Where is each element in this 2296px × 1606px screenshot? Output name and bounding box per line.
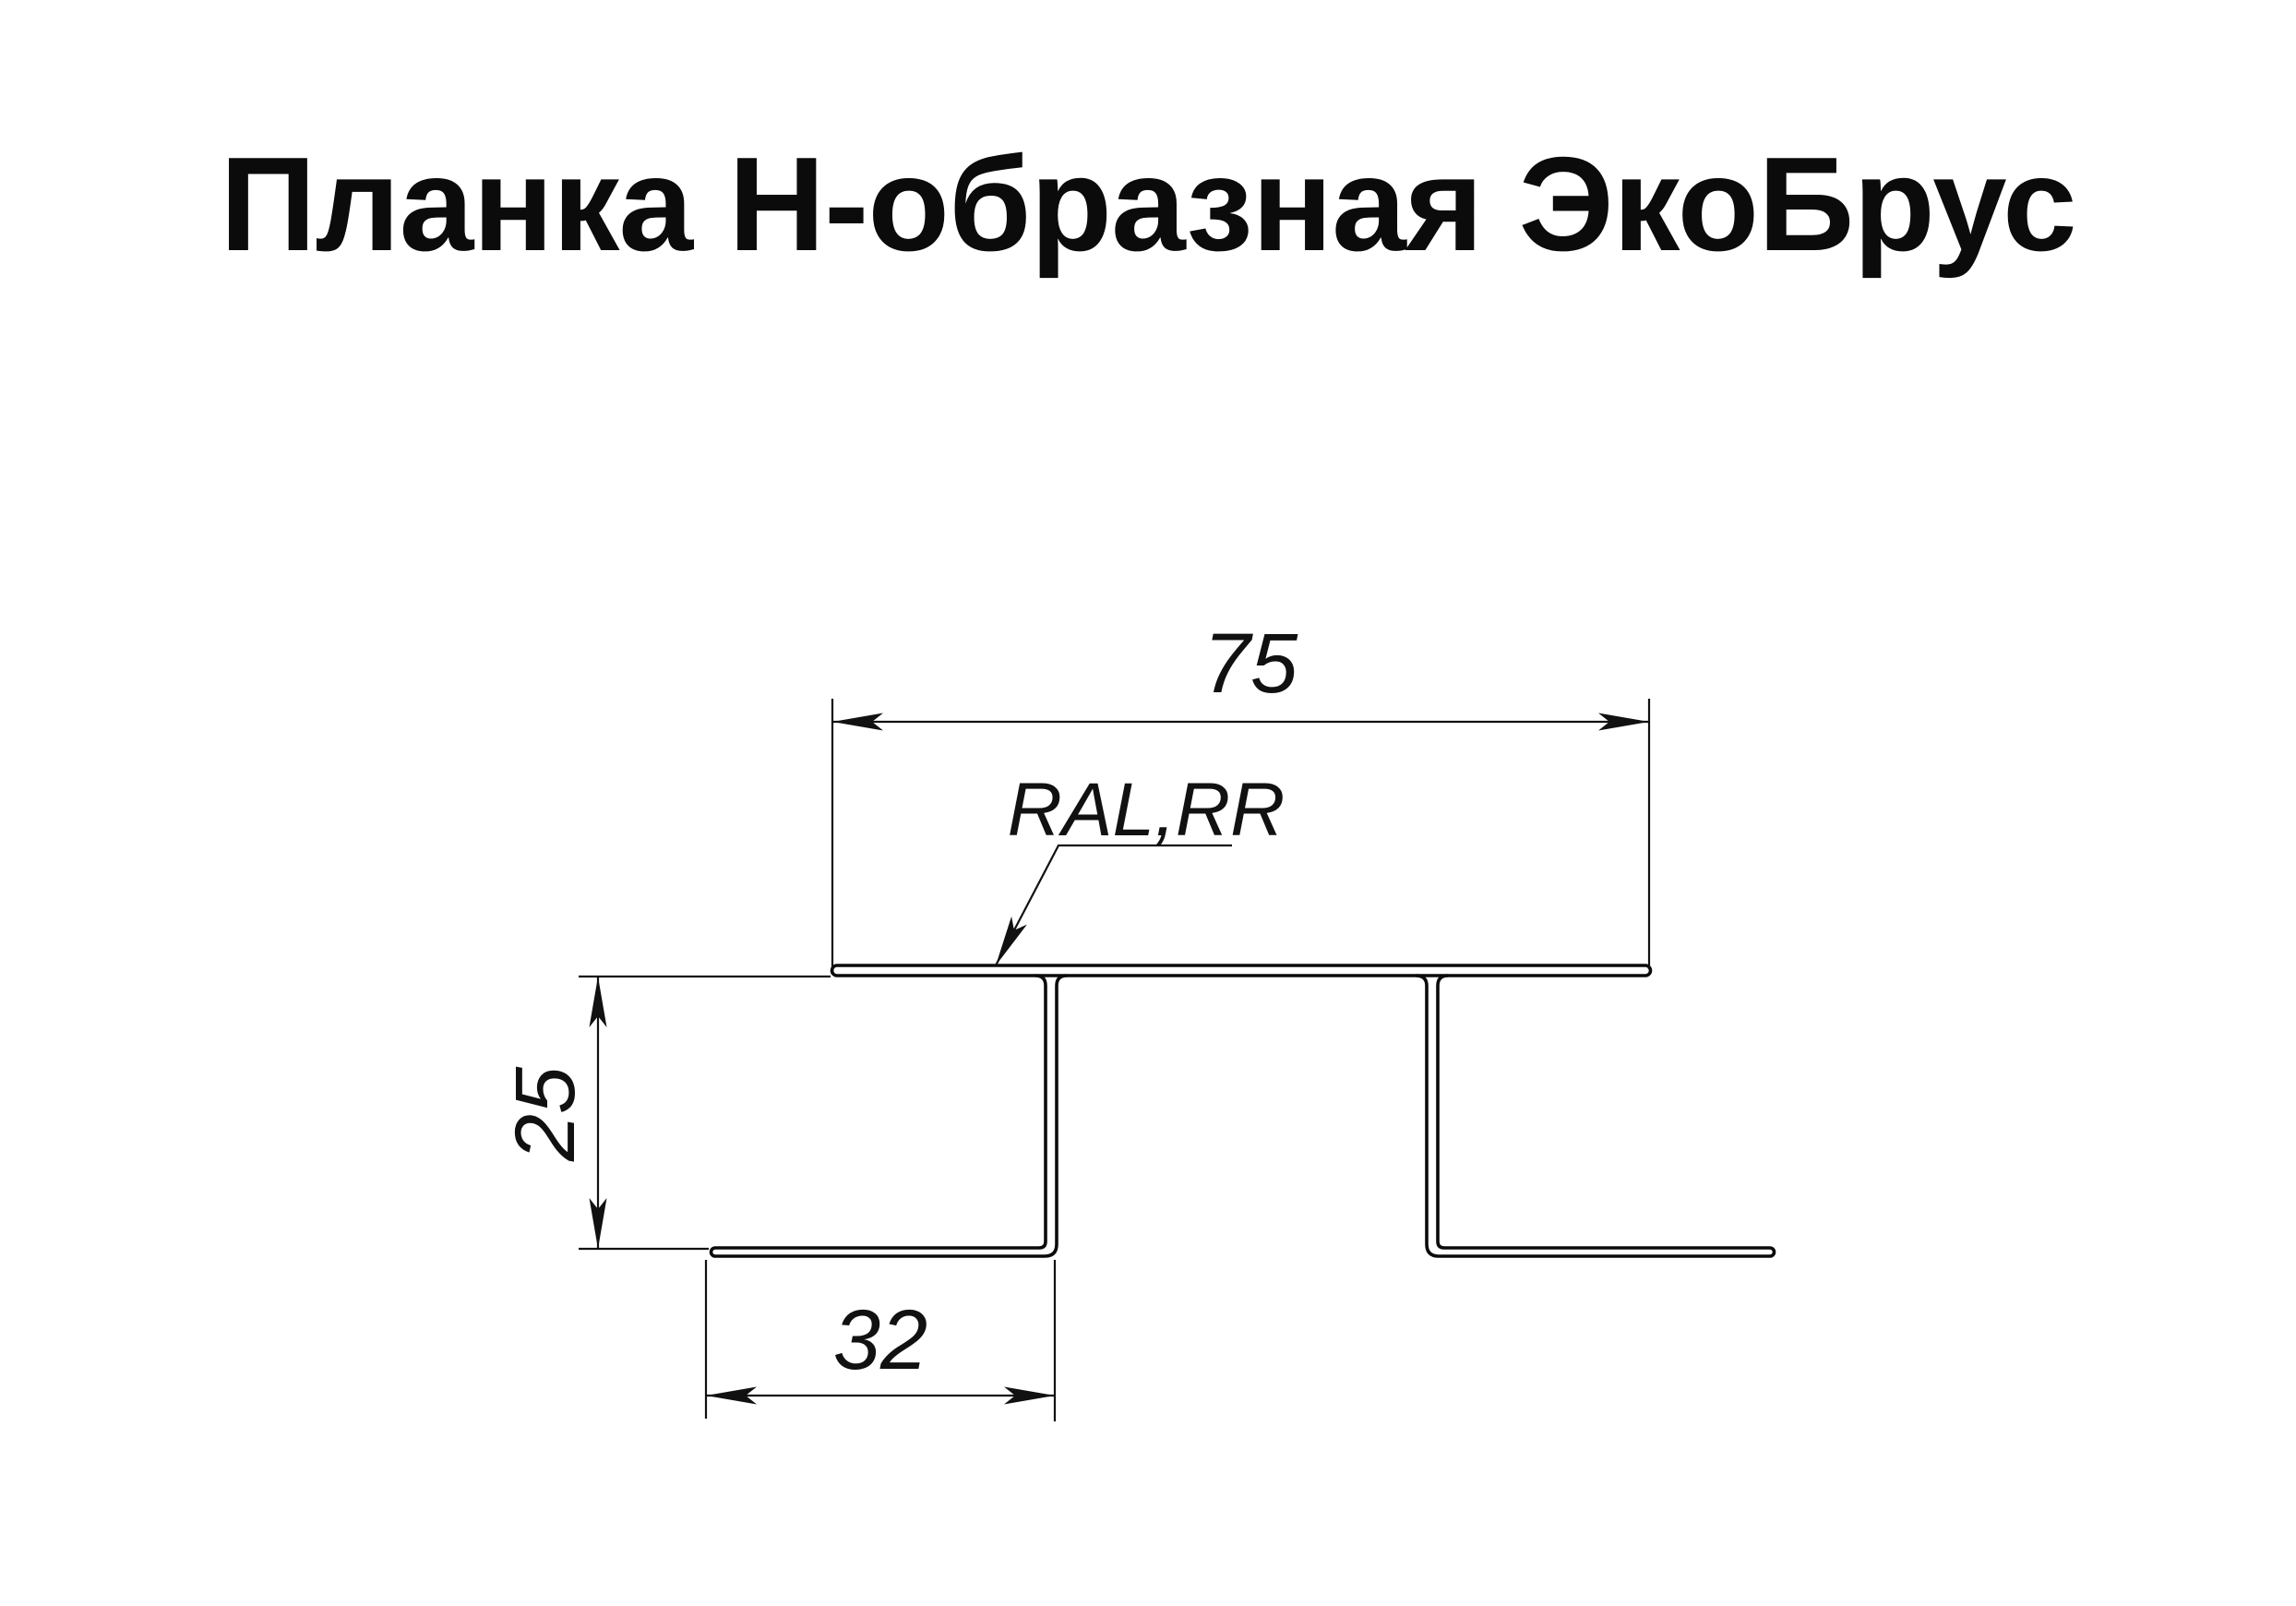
profile-left-channel — [712, 976, 1068, 1256]
profile-top-strip — [832, 965, 1651, 976]
leader-arrow-icon — [988, 917, 1027, 970]
dim-25-value: 25 — [498, 1066, 592, 1162]
leader-line — [996, 845, 1232, 965]
material-leader: RAL,RR — [988, 768, 1286, 969]
profile-right-channel — [1416, 976, 1775, 1256]
dimension-left-height: 25 — [498, 977, 831, 1249]
dimension-bottom-flange: 32 — [706, 1260, 1055, 1421]
technical-drawing: 75 25 32 RAL,RR — [0, 0, 2296, 1606]
profile-outline — [712, 965, 1775, 1256]
material-label: RAL,RR — [1008, 768, 1286, 852]
dim-32-value: 32 — [833, 1293, 927, 1387]
dim-75-value: 75 — [1203, 617, 1298, 711]
